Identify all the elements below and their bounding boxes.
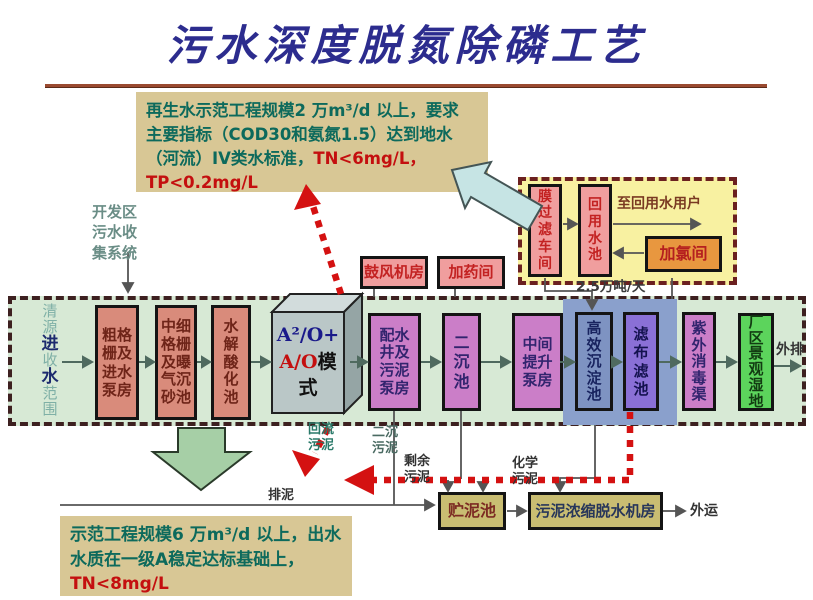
a2o-line1: A²/O+: [270, 322, 346, 349]
a2o-line2: A/O模: [270, 349, 346, 376]
a2o-line3: 式: [270, 375, 346, 402]
intake-char-bold: 进: [38, 336, 62, 352]
label-chemical-sludge: 化学 污泥: [512, 456, 538, 487]
node-sludge-dewatering: 污泥浓缩脱水机房: [528, 492, 663, 530]
intake-char: 围: [38, 401, 62, 417]
intake-char-bold: 水: [38, 369, 62, 385]
note-top-line3: （河流）IV类水标准，TN<6mg/L，: [146, 147, 478, 171]
note-top-line1: 再生水示范工程规模2 万m³/d 以上，要求: [146, 99, 478, 123]
node-high-efficiency-sedimentation: 高 效 沉 淀 池: [575, 312, 613, 411]
note-bottom-line2: 水质在一级A稳定达标基础上，: [70, 548, 342, 573]
node-dosing-room: 加药间: [437, 256, 505, 289]
node-cloth-filter: 滤 布 滤 池: [623, 312, 659, 411]
title-divider: [45, 84, 767, 88]
node-reuse-water-pool: 回 用 水 池: [578, 184, 612, 277]
node-coarse-screen-pump: 粗格 栅及 进水 泵房: [95, 305, 139, 420]
node-hydrolysis-tank: 水 解 酸 化 池: [211, 305, 251, 420]
node-landscape-wetland: 厂 区 景 观 湿 地: [738, 313, 774, 411]
node-fine-screen-grit: 中细 格栅 及曝 气沉 砂池: [155, 305, 197, 420]
a2o-line2-black: 模: [318, 351, 337, 373]
label-return-sludge: 回流 污泥: [308, 422, 334, 453]
node-a2o-mode: A²/O+ A/O模 式: [270, 322, 346, 402]
node-sludge-storage: 贮泥池: [438, 492, 506, 530]
node-uv-disinfection: 紫 外 消 毒 渠: [682, 312, 716, 411]
label-collection-system: 开发区 污水收 集系统: [92, 202, 137, 263]
note-top-line3-teal: （河流）IV类水标准，: [146, 149, 313, 168]
label-outbound-transport: 外运: [690, 503, 718, 520]
node-membrane-filtration: 膜 过 滤 车 间: [528, 184, 562, 277]
note-bottom-line1: 示范工程规模6 万m³/d 以上，出水: [70, 523, 342, 548]
green-block-arrow-down: [153, 428, 250, 490]
note-reclaimed-water: 再生水示范工程规模2 万m³/d 以上，要求 主要指标（COD30和氨氮1.5）…: [136, 92, 488, 192]
label-external-discharge: 外排: [776, 342, 804, 359]
page-title: 污水深度脱氮除磷工艺: [0, 12, 813, 73]
note-demonstration-project: 示范工程规模6 万m³/d 以上，出水 水质在一级A稳定达标基础上， TN<8m…: [60, 516, 352, 596]
label-sludge-discharge: 排泥: [268, 488, 294, 504]
note-top-line2: 主要指标（COD30和氨氮1.5）达到地水: [146, 123, 478, 147]
intake-char: 范: [38, 385, 62, 401]
slide: 污水深度脱氮除磷工艺 再生水示范工程规模2 万m³/d 以上，要求 主要指标（C…: [0, 0, 813, 600]
node-distribution-well: 配水 井及 污泥 泵房: [368, 313, 421, 411]
intake-char: 清: [38, 303, 62, 319]
note-top-line3-red: TN<6mg/L，: [313, 149, 425, 168]
note-top-line4: TP<0.2mg/L: [146, 171, 478, 195]
label-excess-sludge: 剩余 污泥: [404, 454, 430, 485]
note-bottom-line3: TN<8mg/L: [70, 572, 342, 597]
node-chlorination-room: 加氯间: [645, 236, 722, 272]
label-secondary-sludge: 二沉 污泥: [372, 425, 398, 456]
node-intermediate-pump: 中间 提升 泵房: [512, 313, 563, 411]
label-capacity: 2.5万吨/天: [576, 279, 645, 295]
a2o-line2-red: A/O: [279, 351, 317, 373]
node-blower-room: 鼓风机房: [360, 256, 428, 289]
label-influent-column: 清 源 进 收 水 范 围: [38, 303, 62, 418]
label-to-reuse-users: 至回用水用户: [617, 196, 701, 213]
node-secondary-clarifier: 二 沉 池: [442, 313, 481, 411]
